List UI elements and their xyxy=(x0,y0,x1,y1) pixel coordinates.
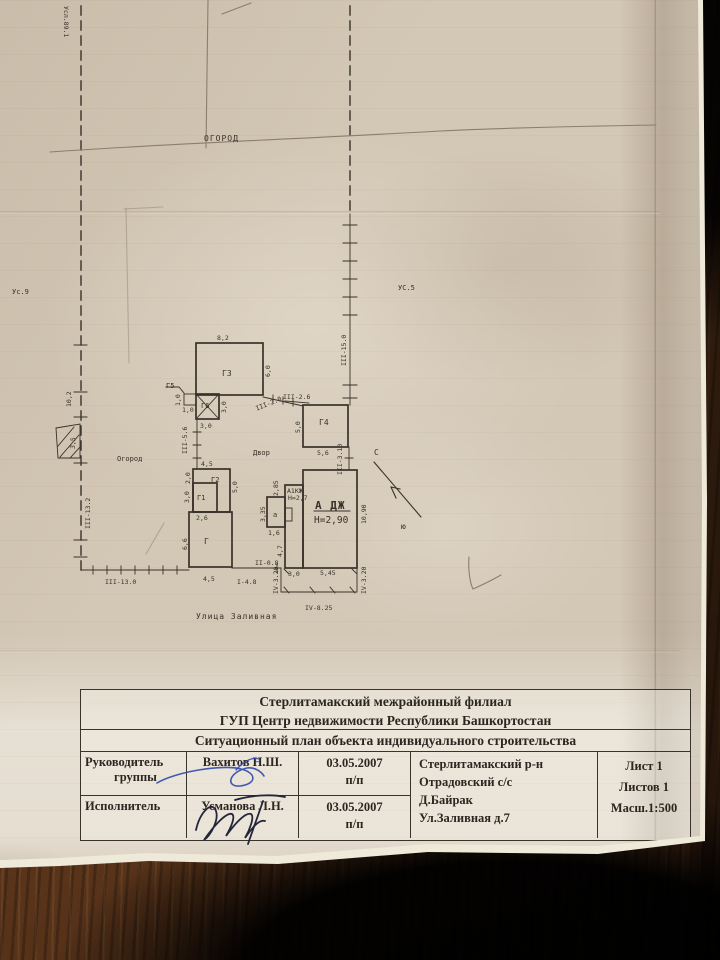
label-house-height: Н=2,90 xyxy=(314,515,349,526)
fence-iii-15-0: III-15.0 xyxy=(340,335,348,366)
label-us9: Ус.9 xyxy=(12,288,29,296)
dim-g-height: 6,6 xyxy=(181,538,189,550)
date-cell: 03.05.2007 п/п xyxy=(299,752,410,795)
label-ogorod-top: ОГОРОД xyxy=(204,134,239,143)
dim-house-w2: 5,45 xyxy=(320,569,336,577)
signed-mark: п/п xyxy=(299,816,410,833)
dim-g2-left: 2,0 xyxy=(184,472,192,484)
label-dvor: Двор xyxy=(253,449,270,457)
dim-annex-bottom: 4,7 xyxy=(276,545,284,557)
label-street: Улица Заливная xyxy=(196,612,277,621)
location-district: Стерлитамакский р-н xyxy=(419,755,597,773)
dim-g4-height: 5,0 xyxy=(294,421,302,433)
dim-g2-right: 5,0 xyxy=(231,481,239,493)
date-cell: 03.05.2007 п/п xyxy=(299,796,410,839)
label-g1: Г1 xyxy=(197,494,205,502)
object-location-cell: Стерлитамакский р-н Отрадовский с/с Д.Ба… xyxy=(411,752,598,838)
dim-g5-height: 1,0 xyxy=(174,394,182,406)
date-value: 03.05.2007 xyxy=(299,799,410,816)
org-line-2: ГУП Центр недвижимости Республики Башкор… xyxy=(81,711,690,730)
title-block-grid: Руководитель группы Вахитов Н.Ш. 03.05.2… xyxy=(81,752,690,838)
role-cell: Исполнитель xyxy=(81,796,187,839)
signed-mark: п/п xyxy=(299,772,410,789)
org-line-1: Стерлитамакский межрайонный филиал xyxy=(81,692,690,711)
fence-iii-3-10: III-3.10 xyxy=(336,444,344,475)
label-house: А ДЖ xyxy=(315,499,346,512)
label-ogorod-left: Огород xyxy=(117,455,142,463)
fence-iv-8-25: IV-8.25 xyxy=(305,604,332,612)
scale: Масш.1:500 xyxy=(598,798,690,819)
building-g5 xyxy=(184,394,196,405)
label-g3: Г3 xyxy=(222,369,232,378)
document-title: Ситуационный план объекта индивидуальног… xyxy=(81,730,690,752)
date-value: 03.05.2007 xyxy=(299,755,410,772)
dim-shed-3-5: 3,5 xyxy=(68,437,77,449)
dim-porch-width: 1,6 xyxy=(268,529,280,537)
fence-iii-5-6: III-5.6 xyxy=(181,427,189,454)
dim-g5-width: 1,0 xyxy=(182,406,194,414)
pencil-marks xyxy=(50,0,656,589)
buildings-outlines xyxy=(56,343,357,568)
porch-step xyxy=(285,508,292,521)
dim-house-right: 10,90 xyxy=(360,504,368,524)
row-executor: Исполнитель Усманова Л.Н. 03.05.2007 п/п xyxy=(81,796,410,839)
name-cell: Вахитов Н.Ш. xyxy=(187,752,299,795)
dim-g4-width: 5,6 xyxy=(317,449,329,457)
dim-g1-height: 3,0 xyxy=(183,491,191,503)
role-line-1: Руководитель xyxy=(85,755,186,770)
row-group-leader: Руководитель группы Вахитов Н.Ш. 03.05.2… xyxy=(81,752,410,796)
organization-header: Стерлитамакский межрайонный филиал ГУП Ц… xyxy=(81,690,690,730)
fence-i-4-8: I-4.8 xyxy=(237,578,257,586)
label-g: Г xyxy=(204,537,209,546)
label-g5: Г5 xyxy=(166,382,174,390)
label-usl-89-1: Усл.89.1 xyxy=(62,6,70,37)
label-g6: Г6 xyxy=(201,402,209,410)
north-arrow: С ю xyxy=(374,448,421,531)
location-village: Д.Байрак xyxy=(419,791,597,809)
role-cell: Руководитель группы xyxy=(81,752,187,795)
dim-annex-top: 2,85 xyxy=(272,480,280,496)
label-g4: Г4 xyxy=(319,418,329,427)
dim-g2-width: 4,5 xyxy=(201,460,213,468)
fence-ii-0-8: II-0.8 xyxy=(255,559,279,567)
location-street: Ул.Заливная д.7 xyxy=(419,809,597,827)
fence-iii-2-6: III-2.6 xyxy=(283,393,310,401)
name-cell: Усманова Л.Н. xyxy=(187,796,299,839)
north-label: С xyxy=(374,448,379,457)
sheet-number: Лист 1 xyxy=(598,756,690,777)
signature-rows: Руководитель группы Вахитов Н.Ш. 03.05.2… xyxy=(81,752,411,838)
fence-iii-2-0: III-2.0 xyxy=(254,395,282,413)
label-us5: УС.5 xyxy=(398,284,415,292)
role-line-2: группы xyxy=(85,770,186,785)
site-plan-sheet: С ю ОГОРОД Огород Двор Улица Заливная УС… xyxy=(0,0,720,960)
location-council: Отрадовский с/с xyxy=(419,773,597,791)
dim-g-width: 4,5 xyxy=(203,575,215,583)
dim-porch-height: 3,35 xyxy=(259,506,267,522)
title-block: Стерлитамакский межрайонный филиал ГУП Ц… xyxy=(80,689,691,841)
dim-house-w1: 3,0 xyxy=(288,570,300,578)
photographed-document: С ю ОГОРОД Огород Двор Улица Заливная УС… xyxy=(0,0,720,960)
dim-left-10-2: 10,2 xyxy=(65,391,73,407)
south-label: ю xyxy=(401,522,406,531)
sheets-total: Листов 1 xyxy=(598,777,690,798)
fence-iv-3-20-right: IV-3.20 xyxy=(360,567,368,594)
fence-iii-13-2: III-13.2 xyxy=(84,498,92,529)
label-g2: Г2 xyxy=(211,476,219,484)
label-annex-height: Н=2,7 xyxy=(288,494,308,502)
dim-g3-width: 8,2 xyxy=(217,334,229,342)
dim-g6-height: 3,0 xyxy=(220,401,228,413)
fence-iii-13-0: III-13.0 xyxy=(105,578,136,586)
label-porch: а xyxy=(273,511,277,519)
dim-g6-width: 3,0 xyxy=(200,422,212,430)
sheet-info-cell: Лист 1 Листов 1 Масш.1:500 xyxy=(598,752,690,838)
fence-iv-3-20-left: IV-3.20 xyxy=(272,567,280,594)
dim-g3-height: 6,0 xyxy=(264,365,272,377)
dim-g1-width: 2,6 xyxy=(196,514,208,522)
